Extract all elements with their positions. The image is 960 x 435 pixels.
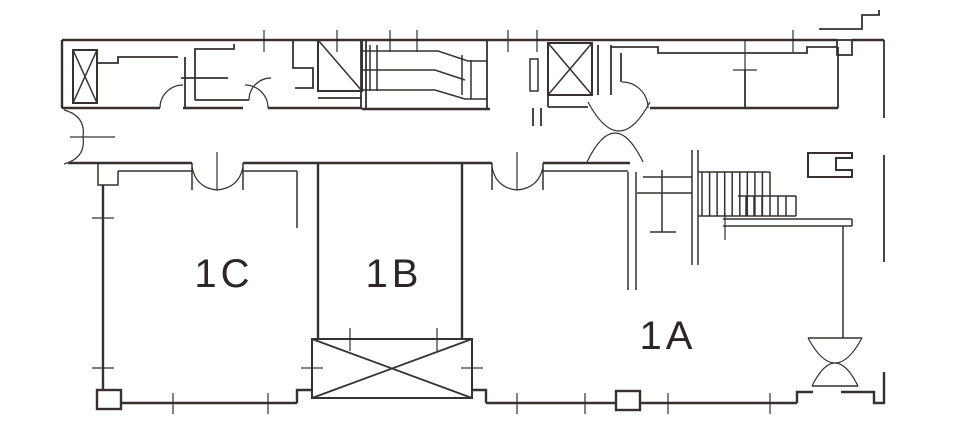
room-label-1a: 1A bbox=[640, 314, 697, 358]
staircase-treads-icon bbox=[628, 150, 852, 338]
room-divider-tick bbox=[733, 40, 757, 70]
door-leaf-rect bbox=[530, 59, 538, 91]
floorplan-svg: 1C 1B 1A bbox=[0, 0, 960, 435]
upper-band bbox=[62, 10, 884, 262]
elevator-x-icon bbox=[548, 43, 592, 95]
corner-square bbox=[837, 40, 852, 55]
column-icon bbox=[616, 391, 640, 410]
column-icon bbox=[97, 390, 121, 409]
room-label-1c: 1C bbox=[194, 252, 253, 296]
lower-block-inner-walls bbox=[98, 163, 628, 228]
room-label-1b: 1B bbox=[366, 252, 423, 296]
double-swing-door-icon bbox=[64, 110, 115, 164]
escalator-icon bbox=[363, 45, 487, 99]
stair-diagonal-icon bbox=[318, 40, 362, 98]
floorplan-page: 1C 1B 1A bbox=[0, 0, 960, 435]
double-swing-door-icon bbox=[587, 102, 650, 162]
double-swing-door-icon bbox=[808, 338, 862, 386]
lower-block bbox=[68, 150, 884, 414]
duct-outline bbox=[808, 153, 852, 177]
door-arc-icon bbox=[160, 78, 648, 108]
upper-band-partitions bbox=[97, 10, 884, 262]
cross-braced-shaft-icon bbox=[312, 339, 472, 398]
elevator-x-icon bbox=[73, 50, 97, 103]
